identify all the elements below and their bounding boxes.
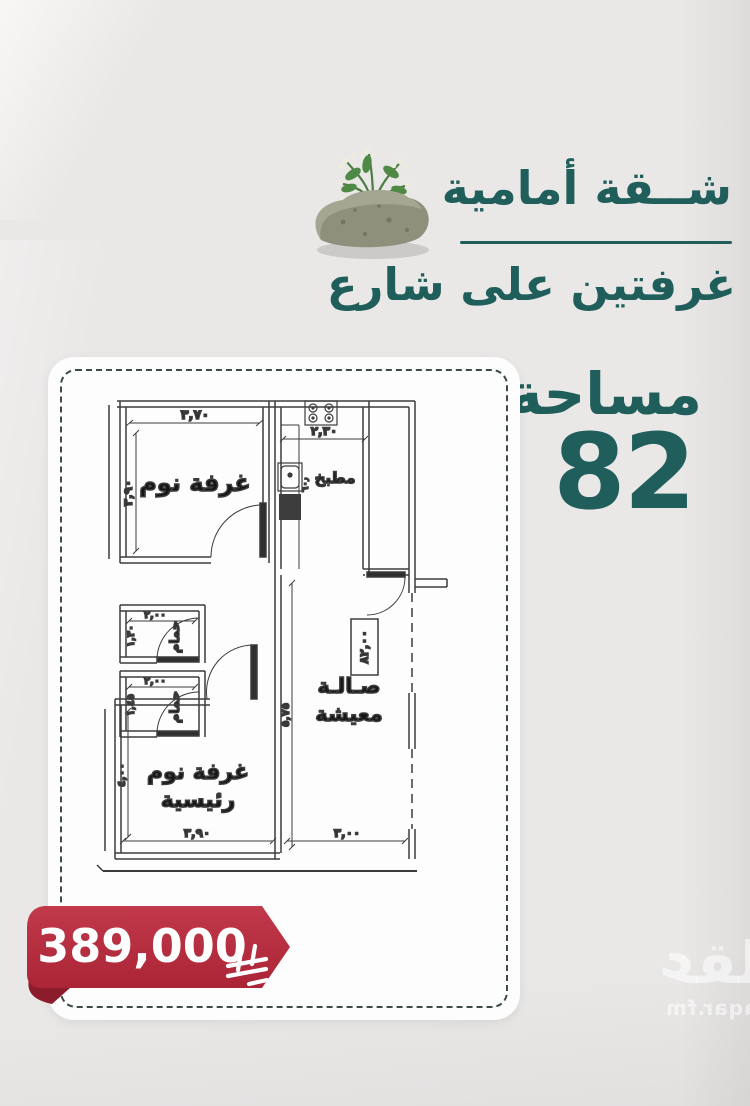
bedroom1-depth-label: ٣,٩٠ xyxy=(121,480,135,507)
total-area-label: ٨٢,٠٠ xyxy=(357,630,371,664)
kitchen-label: مطبخ xyxy=(315,469,356,487)
price-ribbon: 389,000 xyxy=(14,898,304,1008)
living-label-line1: صـالـة xyxy=(317,674,380,698)
bath2-label: حمام xyxy=(168,691,183,724)
page-subtitle: غرفتين على شارع xyxy=(327,258,736,311)
sink-icon xyxy=(278,463,302,491)
area-value: 82 xyxy=(553,420,694,524)
master-label-line1: غرفة نوم xyxy=(147,760,249,785)
kitchen-width-label: ٢,٣٠ xyxy=(311,424,338,438)
entrance-door xyxy=(367,572,405,615)
bedroom1-width-label: ٣,٧٠ xyxy=(181,408,210,423)
plant-flowers xyxy=(338,148,409,186)
master-depth-label: ٤,٠٠ xyxy=(115,763,128,787)
price-amount: 389,000 xyxy=(37,919,247,973)
master-door xyxy=(206,645,257,699)
counter-width-label: ٦٠٫ xyxy=(301,477,311,492)
real-estate-poster: شــقة أمامية غرفتين على شارع مساحة 82 xyxy=(0,0,750,1106)
page-title: شــقة أمامية xyxy=(442,156,732,220)
paper-crease-top-left xyxy=(0,0,180,220)
master-width-label: ٣,٩٠ xyxy=(184,826,211,840)
bedroom1-label: غرفة نوم xyxy=(139,469,251,497)
bath2-width-label: ٢,٠٠ xyxy=(144,676,166,687)
stove-icon xyxy=(305,401,337,425)
living-width-label: ٣,٠٠ xyxy=(334,826,361,840)
living-label-line2: معيشة xyxy=(315,702,383,726)
bath1-label: حمام xyxy=(168,621,183,654)
master-label-line2: رئيسية xyxy=(161,788,236,813)
title-underline xyxy=(460,241,732,244)
floorplan-drawing: ٣,٧٠ ٣,٩٠ غرفة نوم xyxy=(95,393,473,885)
kitchen-cabinet xyxy=(279,494,301,520)
living-depth-label: ٥,٧٥ xyxy=(279,703,292,728)
bath1-depth-label: ١,٣٠ xyxy=(126,625,137,647)
plant-rock-image xyxy=(303,142,443,260)
bath1-width-label: ٢,٠٠ xyxy=(144,610,166,621)
bedroom1-door xyxy=(211,503,266,557)
